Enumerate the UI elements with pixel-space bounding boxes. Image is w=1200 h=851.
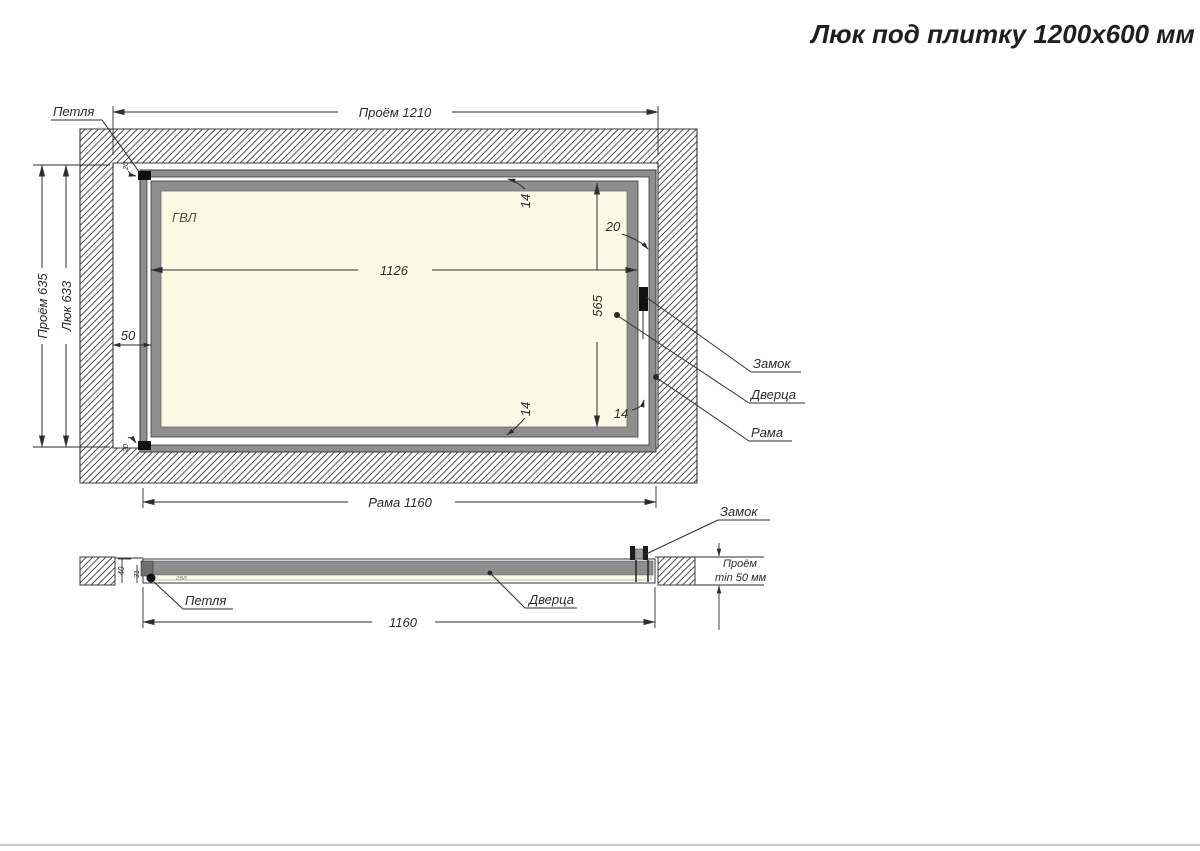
svg-text:Рама: Рама [751,425,783,440]
svg-text:Петля: Петля [53,104,94,119]
section-wall-right [658,557,695,585]
svg-text:14: 14 [518,402,533,416]
dim-section-opening: Проём min 50 мм [715,543,767,630]
svg-text:40: 40 [117,566,126,575]
svg-text:Рама 1160: Рама 1160 [368,495,432,510]
dim-frame-width: Рама 1160 [143,486,656,510]
section-view: гвл Проём min 50 мм 40 [80,504,770,630]
svg-text:1126: 1126 [380,263,409,278]
svg-text:50: 50 [121,328,136,343]
svg-text:Замок: Замок [720,504,758,519]
gvl-panel [161,191,627,427]
svg-text:Люк 633: Люк 633 [59,280,74,332]
svg-text:20: 20 [123,162,130,171]
svg-text:31: 31 [134,570,141,578]
lock-icon [639,287,648,311]
svg-text:Дверца: Дверца [749,387,796,402]
svg-text:565: 565 [590,294,605,316]
svg-text:Замок: Замок [753,356,791,371]
door-leader-dot [614,312,620,318]
svg-text:20: 20 [605,219,621,234]
drawing-page: Люк под плитку 1200х600 мм ГВЛ Проём 121… [0,0,1200,851]
frame-leader-dot [653,374,659,380]
label-hinge-section: Петля [154,582,233,609]
svg-text:Петля: Петля [185,593,226,608]
section-door-leader-dot [488,571,493,576]
section-gvl-label: гвл [176,575,187,582]
svg-text:20: 20 [123,444,130,453]
plan-view: ГВЛ Проём 1210 Проём 635 Люк 633 [33,104,805,510]
section-gvl-strip [147,575,651,580]
svg-text:Проём: Проём [723,558,757,570]
label-lock-section: Замок [644,504,770,555]
page-title: Люк под плитку 1200х600 мм [809,19,1194,49]
section-hinge-pin [147,574,156,583]
gvl-panel-label: ГВЛ [172,210,196,225]
section-door-gray [145,561,653,575]
svg-text:1160: 1160 [389,615,418,630]
dim-section-depth: 40 31 [117,559,141,583]
svg-text:Дверца: Дверца [527,592,574,607]
section-wall-left [80,557,115,585]
hinge-bottom-icon [138,441,151,450]
dim-hatch-height: Люк 633 [59,165,74,447]
drawing-canvas: Люк под плитку 1200х600 мм ГВЛ Проём 121… [0,0,1200,851]
svg-text:Проём 1210: Проём 1210 [359,105,432,120]
svg-text:14: 14 [614,406,628,421]
svg-text:min 50 мм: min 50 мм [715,572,767,584]
svg-text:Проём 635: Проём 635 [35,273,50,339]
svg-text:14: 14 [518,194,533,208]
